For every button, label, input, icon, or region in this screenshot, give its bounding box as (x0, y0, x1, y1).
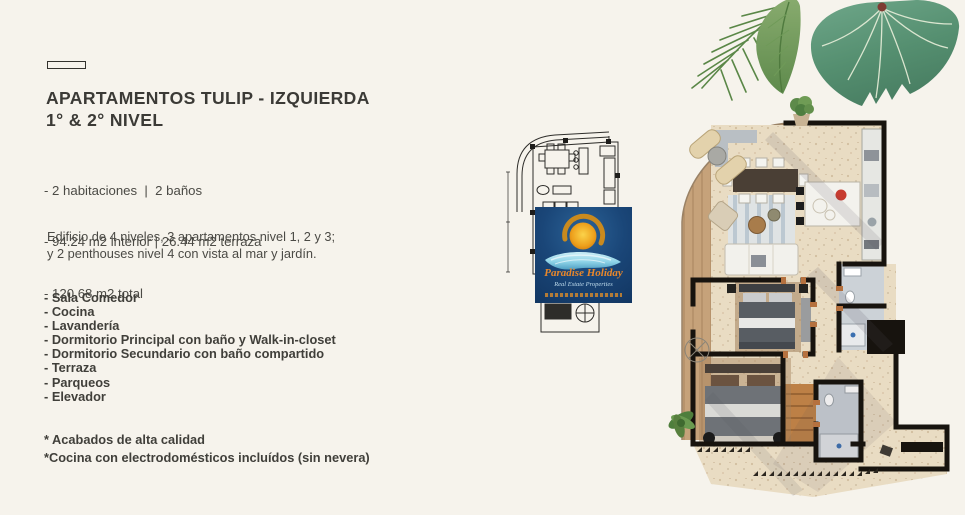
logo-brand-text: Paradise Holiday (535, 267, 632, 279)
logo-caption-bar (545, 293, 622, 297)
building-description-line2: y 2 penthouses nivel 4 con vista al mar … (47, 245, 447, 262)
page-title-line1: APARTAMENTOS TULIP - IZQUIERDA (46, 88, 446, 110)
feature-item: - Cocina (44, 305, 444, 319)
page-title: APARTAMENTOS TULIP - IZQUIERDA 1° & 2° N… (46, 88, 446, 131)
feature-item: - Parqueos (44, 376, 444, 390)
feature-item: - Sala Comedor (44, 291, 444, 305)
side-table-round (768, 209, 780, 221)
logo-tagline-text: Real Estate Properties (535, 281, 632, 288)
bench (901, 442, 943, 452)
feature-item: - Terraza (44, 361, 444, 375)
feature-item: - Elevador (44, 390, 444, 404)
spec-item: - 2 habitaciones | 2 baños (44, 182, 404, 199)
note-item: *Cocina con electrodomésticos incluídos … (44, 449, 444, 467)
notes-list: * Acabados de alta calidad *Cocina con e… (44, 431, 444, 466)
paradise-holiday-logo: Paradise Holiday Real Estate Properties (535, 207, 632, 303)
features-list: - Sala Comedor - Cocina - Lavandería - D… (44, 291, 444, 404)
sun-icon (565, 216, 603, 249)
sofa (725, 244, 798, 275)
note-item: * Acabados de alta calidad (44, 431, 444, 449)
large-leaf-icon (811, 0, 959, 106)
brochure-page: { "page": { "background_color": "#f6f3ec… (0, 0, 965, 511)
coffee-table-round (749, 217, 766, 234)
brand-mark-rectangle (47, 61, 86, 69)
building-description-line1: Edificio de 4 niveles, 3 apartamentos ni… (47, 228, 447, 245)
page-title-line2: 1° & 2° NIVEL (46, 110, 446, 132)
feature-item: - Dormitorio Secundario con baño compart… (44, 347, 444, 361)
building-description: Edificio de 4 niveles, 3 apartamentos ni… (47, 228, 447, 262)
feature-item: - Dormitorio Principal con baño y Walk-i… (44, 333, 444, 347)
bench-seat (715, 130, 757, 143)
secondary-bedroom-bed (727, 282, 811, 352)
feature-item: - Lavandería (44, 319, 444, 333)
mid-leaf-icon (756, 0, 800, 94)
tropical-leaves-decoration (690, 0, 965, 117)
rendered-floorplan (653, 92, 965, 515)
